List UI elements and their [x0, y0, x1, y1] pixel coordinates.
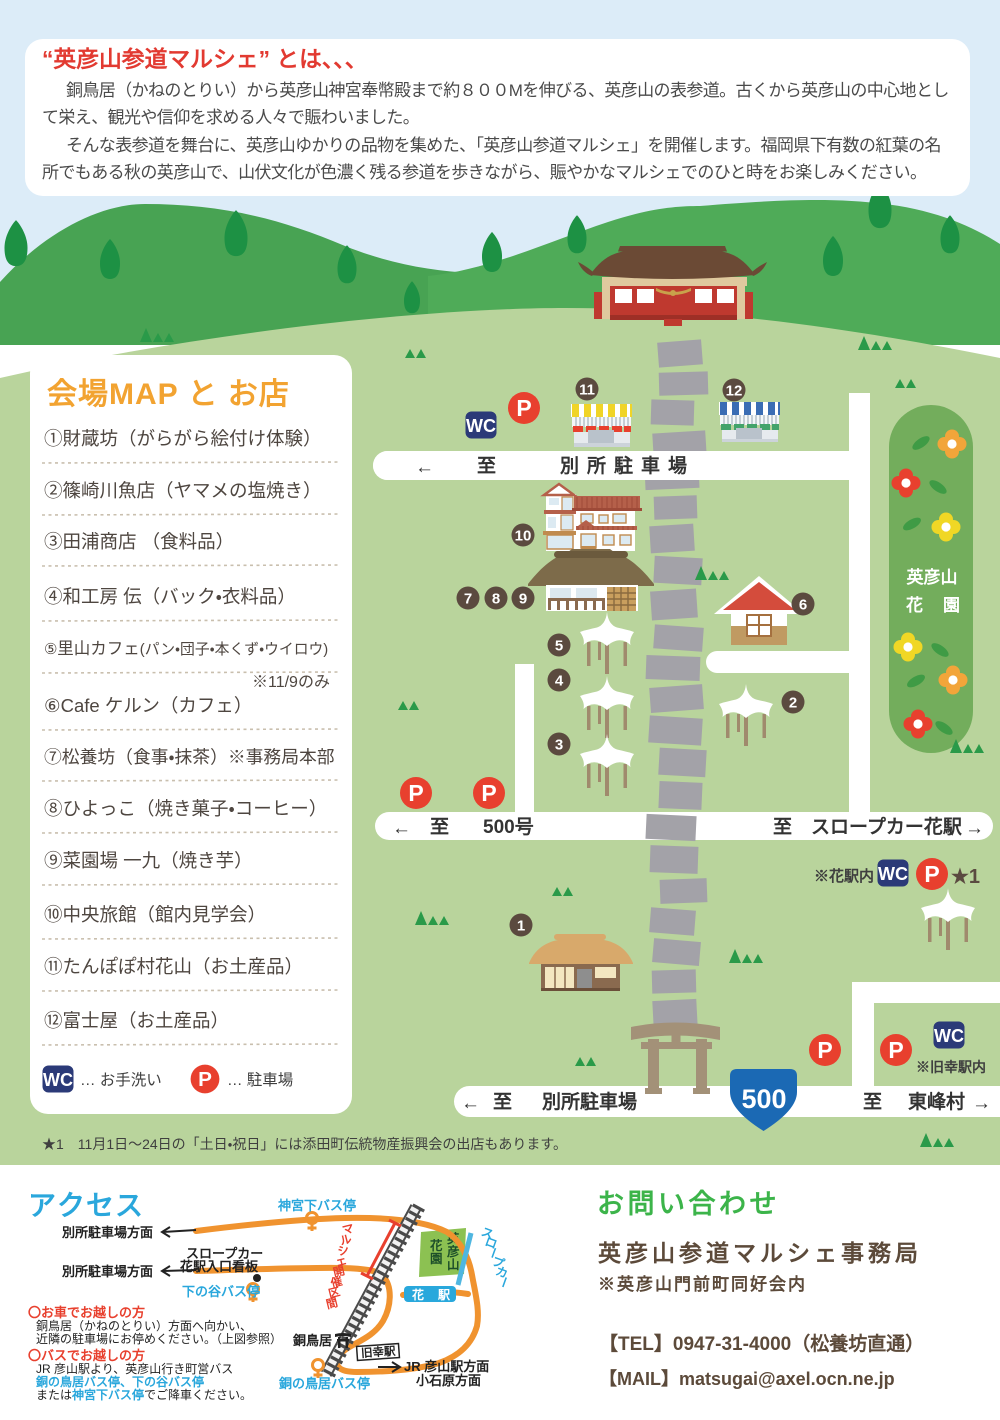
svg-text:⑤里山カフェ(パン・団子・本くず・ウイロウ): ⑤里山カフェ(パン・団子・本くず・ウイロウ): [44, 639, 328, 658]
svg-text:会場MAP と お店: 会場MAP と お店: [47, 378, 290, 411]
svg-text:花駅入口看板: 花駅入口看板: [179, 1259, 259, 1274]
svg-text:花: 花: [429, 1238, 443, 1253]
svg-text:至: 至: [773, 817, 792, 838]
svg-text:別所駐車場方面: 別所駐車場方面: [61, 1264, 153, 1279]
svg-text:★1: ★1: [951, 866, 980, 888]
svg-text:至: 至: [477, 456, 496, 477]
svg-text:⑧ひよっこ（焼き菓子・コーヒー）: ⑧ひよっこ（焼き菓子・コーヒー）: [44, 798, 327, 819]
svg-text:8: 8: [492, 591, 500, 608]
svg-text:銅鳥居: 銅鳥居: [292, 1333, 332, 1348]
svg-text:または神宮下バス停でご降車ください。: または神宮下バス停でご降車ください。: [36, 1387, 252, 1402]
svg-text:★1 11月1日～24日の「土日・祝日」には添田町伝統物産振: ★1 11月1日～24日の「土日・祝日」には添田町伝統物産振興会の出店もあります…: [42, 1136, 567, 1152]
svg-text:近隣の駐車場にお停めください。（上図参照）: 近隣の駐車場にお停めください。（上図参照）: [36, 1331, 282, 1346]
svg-text:東峰村: 東峰村: [908, 1090, 965, 1113]
svg-text:お問い合わせ: お問い合わせ: [597, 1189, 780, 1219]
svg-text:花: 花: [905, 595, 923, 615]
svg-text:※花駅内: ※花駅内: [814, 867, 874, 885]
svg-text:山: 山: [447, 1258, 460, 1272]
svg-text:⑦松養坊（食事・抹茶）※事務局本部: ⑦松養坊（食事・抹茶）※事務局本部: [44, 747, 335, 767]
svg-text:④和工房 伝（バック・衣料品）: ④和工房 伝（バック・衣料品）: [44, 586, 296, 607]
svg-text:③田浦商店 （食料品）: ③田浦商店 （食料品）: [44, 531, 234, 552]
svg-text:駅: 駅: [437, 1288, 451, 1302]
svg-text:→: →: [965, 818, 984, 839]
svg-text:→: →: [972, 1093, 991, 1114]
svg-text:3: 3: [555, 737, 563, 754]
svg-text:銅の鳥居バス停: 銅の鳥居バス停: [278, 1376, 370, 1391]
svg-text:⑪たんぽぽ村花山（お土産品）: ⑪たんぽぽ村花山（お土産品）: [44, 956, 303, 977]
svg-text:JR 彦山駅より、英彦山行き町営バス: JR 彦山駅より、英彦山行き町営バス: [36, 1362, 233, 1376]
svg-text:て栄え、観光や信仰を求める人々で賑わいました。: て栄え、観光や信仰を求める人々で賑わいました。: [42, 108, 419, 127]
svg-text:英彦山: 英彦山: [907, 567, 958, 587]
svg-text:そんな表参道を舞台に、英彦山ゆかりの品物を集めた、「英彦山参: そんな表参道を舞台に、英彦山ゆかりの品物を集めた、「英彦山参道マルシェ」を開催し…: [66, 136, 941, 155]
svg-text:9: 9: [519, 591, 527, 608]
svg-text:花: 花: [411, 1287, 424, 1302]
svg-text:“英彦山参道マルシェ” とは、、、: “英彦山参道マルシェ” とは、、、: [42, 46, 368, 72]
svg-text:500号: 500号: [483, 816, 534, 838]
svg-text:11: 11: [579, 382, 595, 399]
svg-text:至: 至: [863, 1092, 882, 1113]
svg-text:←: ←: [415, 457, 434, 478]
svg-text:神宮下バス停: 神宮下バス停: [277, 1198, 356, 1213]
svg-text:←: ←: [392, 818, 411, 839]
svg-text:⑩中央旅館（館内見学会）: ⑩中央旅館（館内見学会）: [44, 904, 266, 925]
svg-text:… お手洗い: … お手洗い: [80, 1071, 162, 1089]
svg-text:JR 彦山駅方面: JR 彦山駅方面: [404, 1359, 489, 1374]
svg-text:園: 園: [943, 596, 960, 615]
svg-text:2: 2: [789, 695, 797, 712]
svg-text:〇お車でお越しの方: 〇お車でお越しの方: [28, 1305, 145, 1320]
svg-text:②篠崎川魚店（ヤマメの塩焼き）: ②篠崎川魚店（ヤマメの塩焼き）: [44, 480, 322, 501]
svg-text:下の谷バス停: 下の谷バス停: [182, 1284, 260, 1299]
svg-text:1: 1: [517, 918, 525, 935]
svg-text:至: 至: [493, 1092, 512, 1113]
svg-text:別所駐車場: 別所駐車場: [542, 1090, 637, 1113]
svg-text:小石原方面: 小石原方面: [416, 1373, 481, 1388]
svg-text:園: 園: [430, 1252, 443, 1266]
svg-text:500: 500: [741, 1084, 786, 1114]
svg-text:別所駐車場方面: 別所駐車場方面: [61, 1225, 153, 1240]
svg-text:英彦山参道マルシェ事務局: 英彦山参道マルシェ事務局: [598, 1240, 922, 1266]
svg-text:… 駐車場: … 駐車場: [227, 1071, 293, 1089]
svg-text:至: 至: [430, 817, 449, 838]
svg-text:【MAIL】matsugai@axel.ocn.ne.jp: 【MAIL】matsugai@axel.ocn.ne.jp: [599, 1369, 895, 1389]
svg-text:5: 5: [555, 638, 563, 655]
svg-text:←: ←: [461, 1093, 480, 1114]
svg-text:⑫富士屋（お土産品）: ⑫富士屋（お土産品）: [44, 1010, 229, 1031]
svg-text:6: 6: [799, 597, 807, 614]
svg-text:※英彦山門前町同好会内: ※英彦山門前町同好会内: [598, 1274, 807, 1294]
svg-text:10: 10: [515, 528, 532, 545]
svg-text:①財蔵坊（がらがら絵付け体験）: ①財蔵坊（がらがら絵付け体験）: [44, 428, 322, 449]
svg-text:アクセス: アクセス: [28, 1190, 144, 1221]
svg-text:銅鳥居（かねのとりい）から英彦山神宮奉幣殿まで約８００Mを伸: 銅鳥居（かねのとりい）から英彦山神宮奉幣殿まで約８００Mを伸びる、英彦山の表参道…: [66, 81, 949, 100]
svg-text:銅の鳥居バス停、下の谷バス停: 銅の鳥居バス停、下の谷バス停: [35, 1374, 204, 1389]
svg-text:スロープカー花駅: スロープカー花駅: [811, 815, 963, 838]
svg-text:※11/9のみ: ※11/9のみ: [252, 674, 330, 691]
svg-text:4: 4: [555, 673, 564, 690]
svg-text:〇バスでお越しの方: 〇バスでお越しの方: [28, 1348, 145, 1363]
svg-text:7: 7: [464, 591, 472, 608]
svg-text:※旧幸駅内: ※旧幸駅内: [916, 1059, 986, 1075]
svg-text:別所駐車場: 別所駐車場: [560, 454, 695, 477]
svg-text:⑥Cafe ケルン（カフェ）: ⑥Cafe ケルン（カフェ）: [44, 695, 252, 716]
svg-text:銅鳥居（かねのとりい）方面へ向かい、: 銅鳥居（かねのとりい）方面へ向かい、: [36, 1318, 252, 1333]
svg-text:【TEL】0947-31-4000（松養坊直通）: 【TEL】0947-31-4000（松養坊直通）: [599, 1332, 924, 1355]
svg-text:⑨菜園場 一九（焼き芋）: ⑨菜園場 一九（焼き芋）: [44, 850, 253, 871]
svg-text:12: 12: [726, 383, 743, 400]
svg-text:所でもある秋の英彦山で、山伏文化が色濃く残る参道を歩きながら: 所でもある秋の英彦山で、山伏文化が色濃く残る参道を歩きながら、賑やかなマルシェで…: [42, 163, 926, 182]
